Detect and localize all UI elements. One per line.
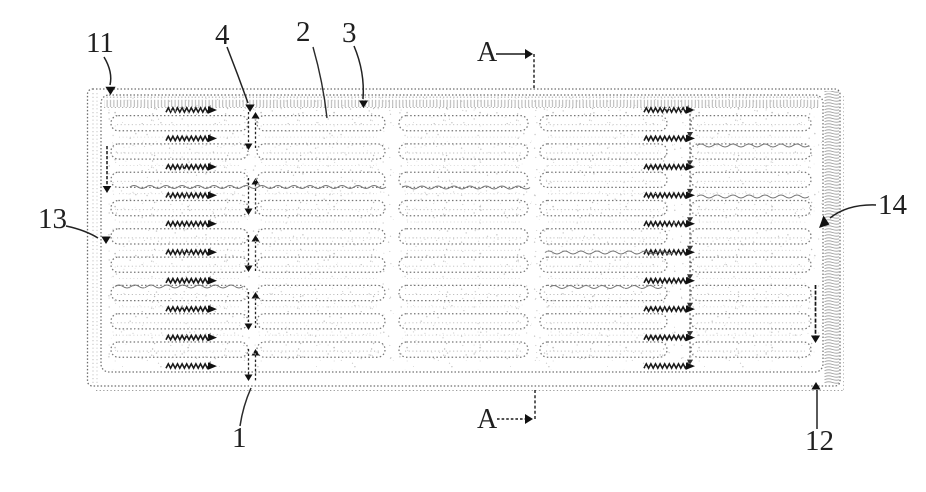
svg-text:14: 14 xyxy=(878,189,908,221)
svg-text:2: 2 xyxy=(296,16,311,48)
svg-text:3: 3 xyxy=(342,17,357,49)
svg-text:13: 13 xyxy=(38,203,67,235)
svg-text:1: 1 xyxy=(232,422,247,454)
svg-text:4: 4 xyxy=(215,19,230,51)
svg-text:12: 12 xyxy=(805,425,834,457)
svg-text:A: A xyxy=(477,404,498,435)
svg-text:11: 11 xyxy=(86,27,114,59)
svg-text:A: A xyxy=(477,37,498,68)
